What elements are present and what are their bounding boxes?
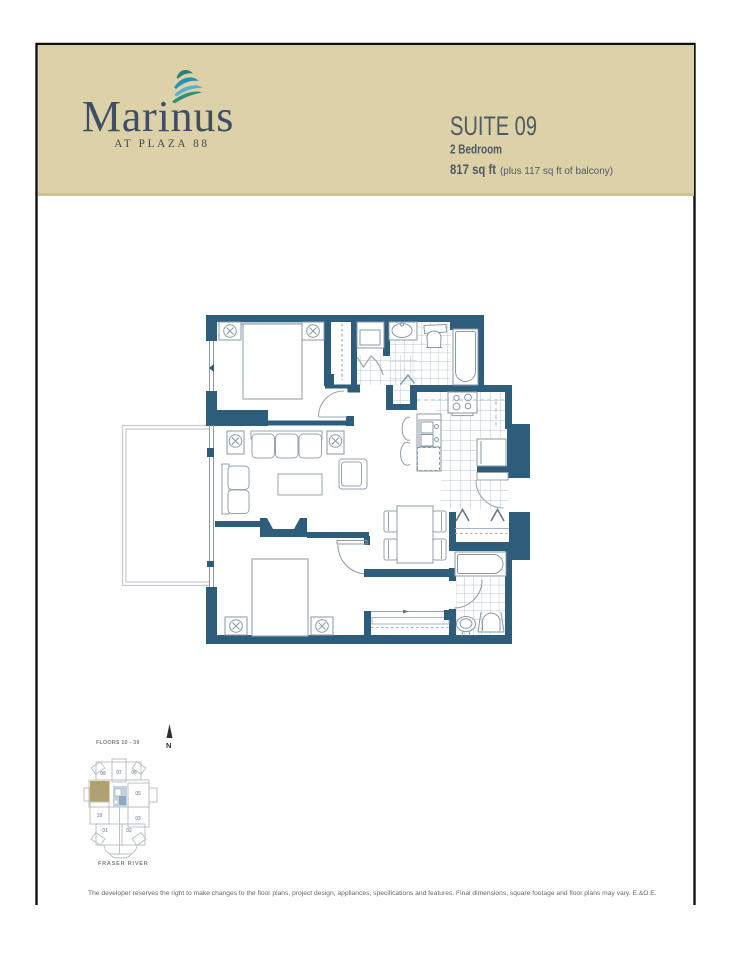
svg-text:N: N xyxy=(166,741,171,750)
svg-text:09: 09 xyxy=(97,791,103,797)
svg-text:FRASER RIVER: FRASER RIVER xyxy=(98,861,149,867)
svg-text:02: 02 xyxy=(126,828,132,834)
svg-text:AT PLAZA 88: AT PLAZA 88 xyxy=(114,138,209,150)
svg-text:SUITE 09: SUITE 09 xyxy=(450,111,537,141)
svg-text:03: 03 xyxy=(135,816,141,822)
svg-text:08: 08 xyxy=(100,771,106,777)
svg-text:06: 06 xyxy=(131,770,137,776)
svg-text:FLOORS 10 - 39: FLOORS 10 - 39 xyxy=(96,740,140,746)
svg-text:07: 07 xyxy=(116,770,122,776)
svg-text:The developer reserves the rig: The developer reserves the right to make… xyxy=(88,890,657,897)
svg-text:05: 05 xyxy=(135,791,141,797)
svg-text:2 Bedroom: 2 Bedroom xyxy=(450,142,502,157)
svg-text:10: 10 xyxy=(97,813,103,819)
svg-text:01: 01 xyxy=(102,828,108,834)
svg-text:Marinus: Marinus xyxy=(82,92,234,141)
